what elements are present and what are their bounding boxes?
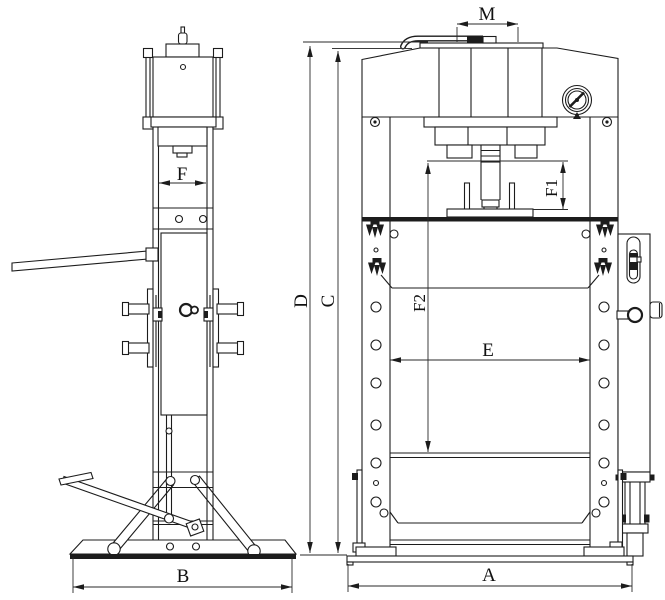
dim-label-B: B (177, 566, 190, 587)
column-foot (356, 547, 396, 556)
table-pin-icon (368, 258, 386, 276)
handle-socket (146, 248, 158, 261)
dim-label-D: D (291, 294, 312, 308)
dim-F: F (159, 164, 206, 186)
dim-label-E: E (482, 340, 494, 361)
dim-A: A (348, 564, 632, 592)
front-base-plate (347, 556, 633, 562)
filler-knob (179, 33, 188, 44)
side-base-plate (70, 540, 296, 554)
dim-label-F1: F1 (542, 179, 561, 197)
cylinder-and-ram (424, 117, 557, 212)
pump-plunger-rod (166, 415, 172, 519)
dim-C: C (318, 49, 412, 554)
dim-label-F: F (177, 164, 188, 185)
table-pin-icon (596, 220, 614, 238)
side-base-floor-band (70, 554, 296, 559)
press-technical-drawing: F B A M (0, 0, 665, 600)
ram-nose (482, 200, 499, 207)
dim-label-C: C (318, 295, 339, 308)
head-top-plate (420, 43, 543, 48)
pump-cylinder (627, 533, 643, 556)
column-adjustment-holes (371, 302, 609, 517)
cylinder-body (158, 127, 207, 146)
upper-cross-member (153, 208, 213, 229)
work-table (362, 217, 618, 288)
dim-label-F2: F2 (410, 294, 429, 312)
cylinder-cap (166, 44, 199, 57)
side-view (12, 27, 296, 559)
pump-handle (12, 248, 158, 271)
drawing-canvas: F B A M (0, 0, 665, 600)
dim-label-M: M (479, 4, 496, 25)
handle-clamp (467, 36, 483, 44)
ram-slide-block (161, 233, 207, 415)
table-pin-icon (594, 258, 612, 276)
lower-shelf (390, 453, 590, 545)
dim-B: B (73, 557, 292, 593)
dim-F1: F1 (533, 162, 568, 210)
dim-E: E (390, 340, 590, 363)
front-view (347, 36, 662, 566)
column-bracket (357, 470, 362, 548)
release-valve-knob (628, 308, 642, 322)
column-bracket (618, 470, 623, 548)
cylinder-mount-plate (151, 117, 216, 127)
column-foot (584, 547, 624, 556)
bolster-plate (447, 209, 533, 217)
side-head-block (153, 57, 213, 117)
table-pin-icon (366, 220, 384, 238)
dim-F2: F2 (410, 163, 431, 452)
dim-label-A: A (482, 565, 496, 586)
